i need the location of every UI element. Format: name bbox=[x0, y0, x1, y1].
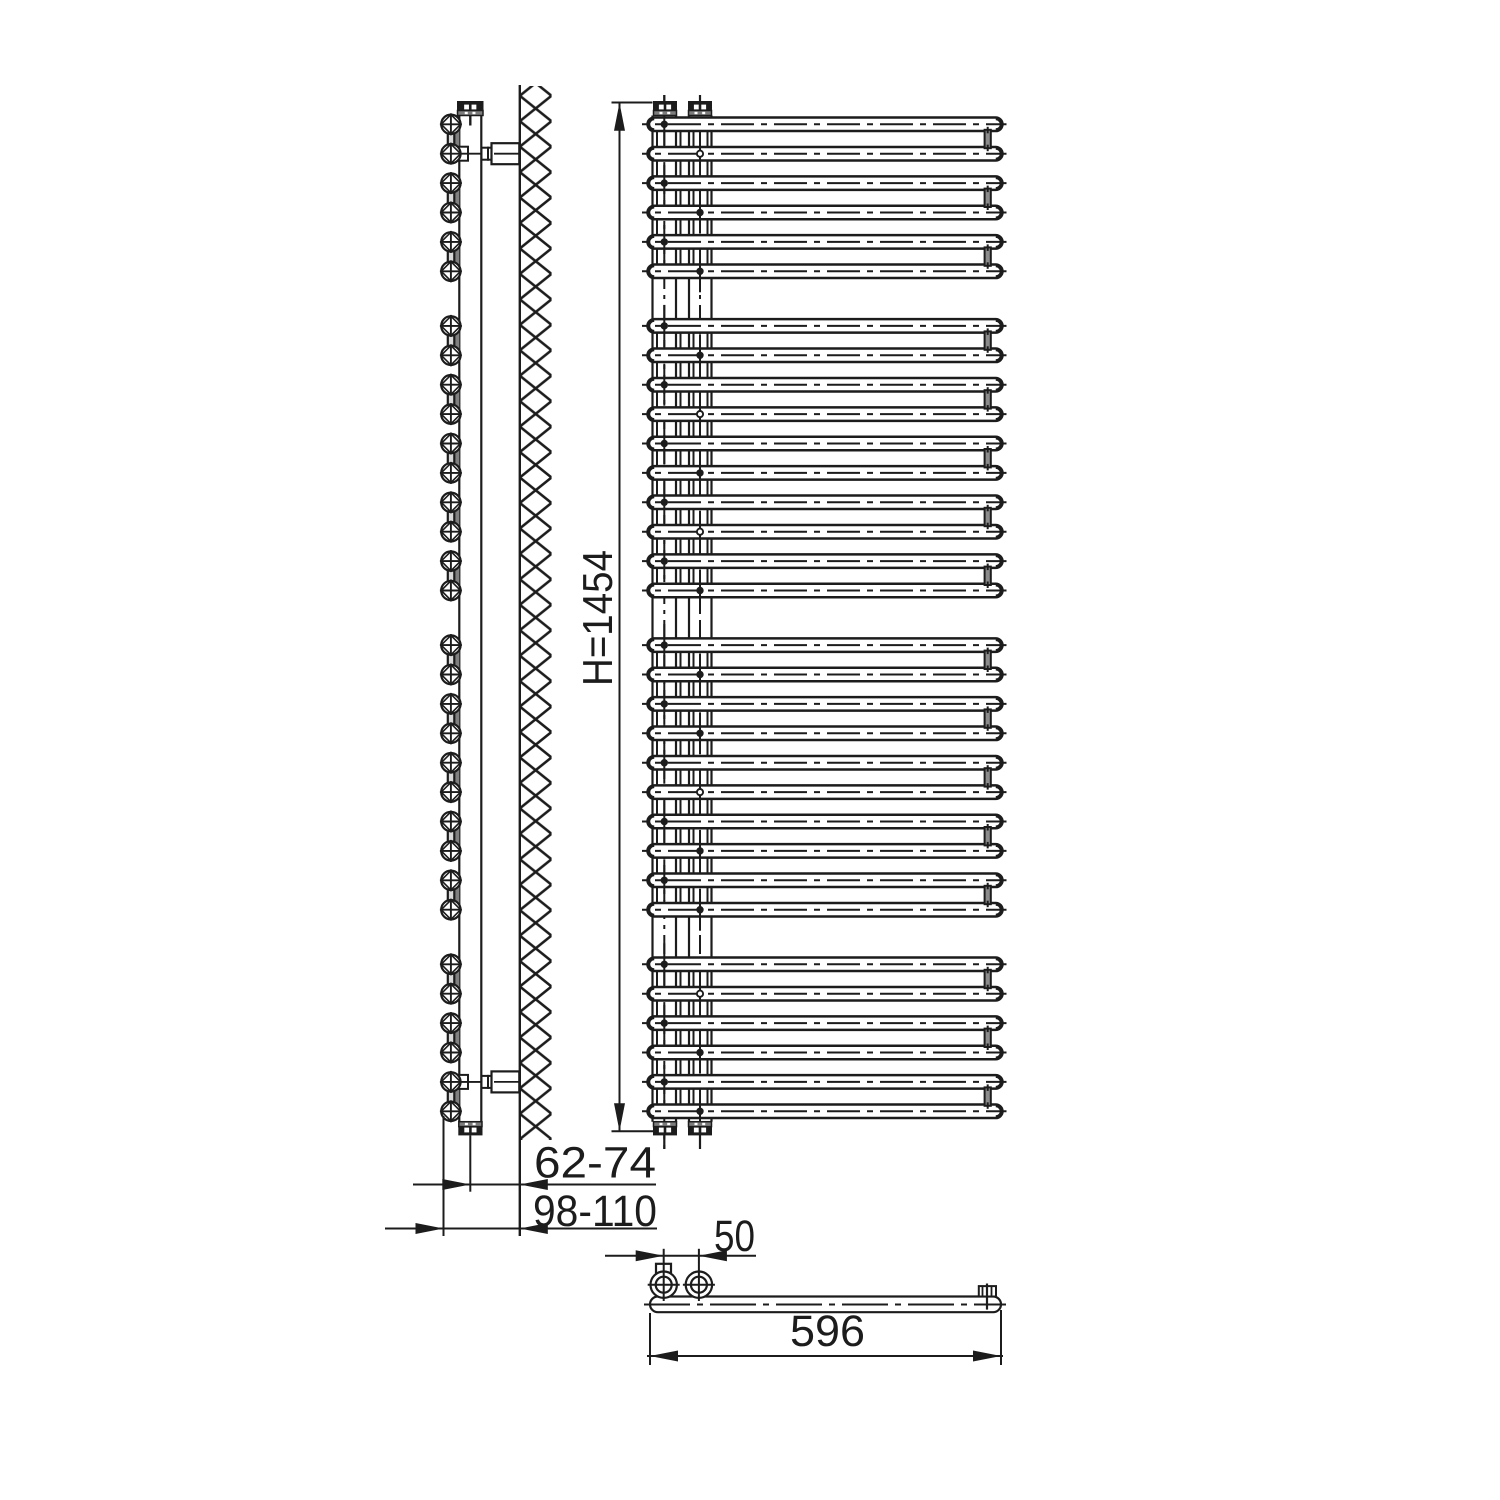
svg-text:H=1454: H=1454 bbox=[574, 550, 621, 686]
svg-text:596: 596 bbox=[790, 1307, 865, 1356]
svg-text:62-74: 62-74 bbox=[534, 1139, 656, 1188]
svg-text:98-110: 98-110 bbox=[533, 1187, 657, 1236]
svg-text:50: 50 bbox=[714, 1212, 755, 1261]
